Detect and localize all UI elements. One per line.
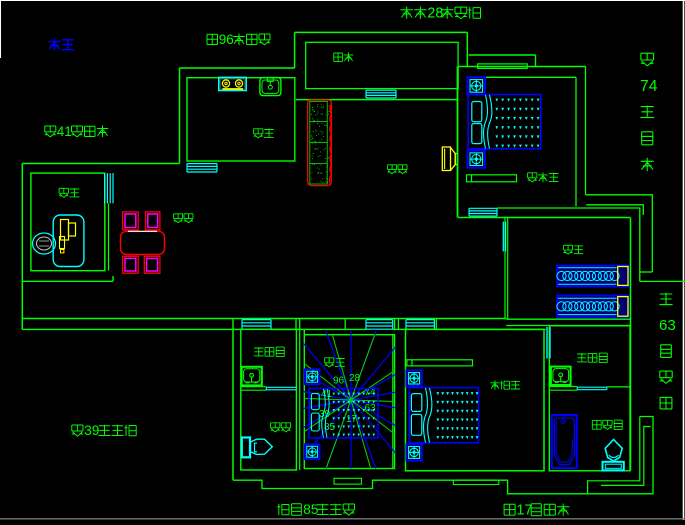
svg-text:63: 63 <box>659 317 676 334</box>
svg-text:17: 17 <box>346 414 358 425</box>
svg-text:41: 41 <box>57 124 72 139</box>
svg-text:85: 85 <box>303 502 319 517</box>
svg-text:39: 39 <box>84 423 100 438</box>
svg-text:63: 63 <box>365 403 377 414</box>
svg-text:17: 17 <box>517 502 533 518</box>
svg-text:96: 96 <box>333 376 345 387</box>
svg-text:41: 41 <box>321 389 333 400</box>
svg-text:96: 96 <box>219 32 234 47</box>
svg-text:74: 74 <box>640 78 658 95</box>
svg-text:28: 28 <box>349 373 361 384</box>
svg-text:28: 28 <box>427 6 443 22</box>
